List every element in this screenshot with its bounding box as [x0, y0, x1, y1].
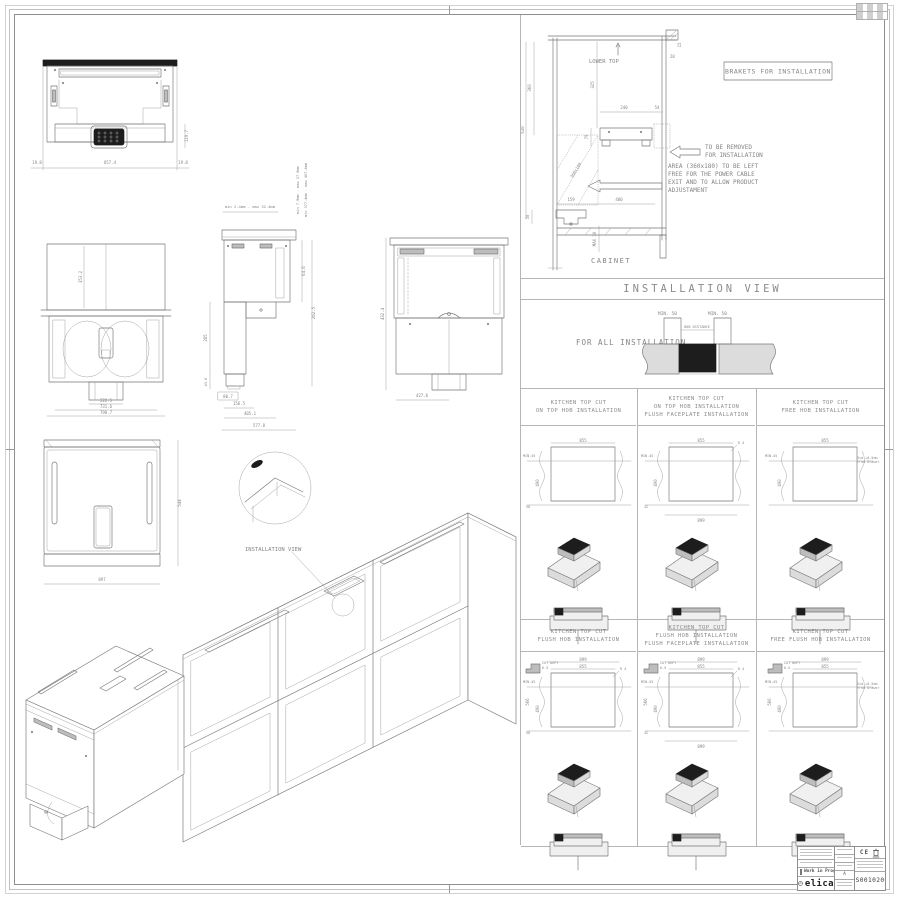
cut-panel-title: KITCHEN TOP CUT: [551, 400, 607, 406]
bottom-view: 353.2 222.5 731.6 798.7: [25, 232, 190, 417]
title-block: Work in Progress elica A CE: [797, 846, 886, 891]
dim-label: min 2.4mm - max 32.4mm: [225, 204, 276, 209]
cabinet-remove-note: TO BE REMOVED: [705, 144, 752, 151]
dim-label: 285: [203, 334, 208, 342]
dim-label: 156.5: [233, 401, 246, 406]
dim-label: 490: [535, 705, 540, 713]
dim-label: 20: [670, 54, 675, 59]
dim-label: 353.2: [78, 270, 83, 283]
dim-label: 80.7: [223, 394, 233, 399]
cut-panel-header: KITCHEN TOP CUT ON TOP HOB INSTALLATION …: [638, 389, 755, 426]
dim-label: 19.8: [178, 160, 188, 165]
dim-label: 159: [567, 197, 575, 202]
dim-label: MAX 30: [592, 231, 597, 246]
rear-view: 427.6 432.4: [380, 228, 520, 408]
dim-label: 899: [697, 518, 705, 523]
dim-label: 405.1: [244, 411, 257, 416]
installation-view-title: INSTALLATION VIEW: [623, 283, 781, 295]
dim-label: 855: [579, 664, 587, 669]
field-row: [835, 880, 854, 890]
kitchen-isometric: INSTALLATION VIEW: [172, 488, 522, 853]
detail-leader-label: INSTALLATION VIEW: [245, 547, 302, 553]
dim-label: 427.6: [416, 393, 429, 398]
dim-label: 490: [777, 479, 782, 487]
cabinet-lower-top-label: LOWER TOP: [589, 59, 619, 65]
drawing-code-row: DS0010200: [855, 872, 885, 888]
dim-label: 432.4: [380, 307, 385, 320]
dim-label: 566: [767, 698, 772, 706]
dim-label: 798.7: [100, 410, 113, 415]
dim-label: CUT DEPT: [784, 661, 800, 665]
revision-field: A: [835, 871, 854, 880]
dim-label: 899: [821, 657, 829, 662]
cut-panel-title: KITCHEN TOP CUT: [551, 629, 607, 635]
title-block-disclaimer2: [798, 860, 834, 868]
cut-panel-header: KITCHEN TOP CUT ON TOP HOB INSTALLATION: [521, 389, 636, 426]
dim-label: 855: [821, 438, 829, 443]
dim-label: MIN.45: [765, 680, 777, 684]
status-checkbox: [800, 869, 802, 875]
unit-isometric: [16, 632, 201, 847]
cut-panel-subtitle: FLUSH HOB INSTALLATION: [656, 633, 738, 639]
cabinet-label: CABINET: [591, 257, 631, 265]
cut-panel-subtitle: FREE FLUSH HOB INSTALLATION: [770, 637, 870, 643]
brand-row: elica: [798, 877, 834, 890]
field-row: [835, 855, 854, 863]
cut-panel-subtitle: FREE HOB INSTALLATION: [782, 408, 860, 414]
brakets-box-label: BRAKETS FOR INSTALLATION: [725, 68, 831, 76]
notes-row: [855, 859, 885, 872]
dim-label: 50: [525, 214, 530, 219]
cutout-diagram: CUT DEPT 6.5 899 855 MIN.45 490: [639, 656, 755, 750]
dim-label: 855: [697, 438, 705, 443]
dim-label: R 4: [738, 441, 744, 445]
cabinet-remove-note: FOR INSTALLATION: [705, 152, 763, 159]
dim-label: MIN.45: [641, 680, 653, 684]
status-row: Work in Progress: [798, 868, 834, 878]
dim-label: 360x180: [569, 161, 582, 178]
dim-label: min 7.9mm - max 37.9mm: [296, 166, 300, 214]
center-tick-top: [449, 6, 450, 15]
dim-label: CUT DEPT: [660, 661, 676, 665]
dim-label: 855: [697, 664, 705, 669]
cut-panel-subtitle: FLUSH HOB INSTALLATION: [538, 637, 620, 643]
cutout-diagram: 855 MIN.45 490: [763, 430, 879, 524]
cabinet-area-note: EXIT AND TO ALLOW PRODUCT: [668, 179, 759, 186]
cut-panel-note: Dim +0.5mm from Drawer: [857, 456, 883, 465]
cut-panel-header: KITCHEN TOP CUT FREE HOB INSTALLATION: [757, 389, 884, 426]
cutout-diagram: CUT DEPT 6.5 899 855 MIN.45 490: [763, 656, 879, 750]
dim-label: 857.4: [104, 160, 117, 165]
center-tick-right: [884, 449, 893, 450]
dim-label: 566: [525, 698, 530, 706]
dim-label: 54: [655, 105, 660, 110]
cabinet-area-note: ADJUSTAMENT: [668, 187, 708, 194]
dim-label: 64.6: [301, 266, 306, 276]
cut-panel-cell: KITCHEN TOP CUT FREE HOB INSTALLATION: [757, 389, 884, 618]
marks-row: CE: [855, 847, 885, 859]
cutout-diagram: 855 MIN.45 490 42 89: [639, 430, 755, 524]
dim-label: 43.6: [204, 378, 208, 387]
cutout-diagram: CUT DEPT 6.5 899 855 MIN.45 490: [521, 656, 637, 750]
dim-label: R 4: [620, 667, 626, 671]
brand-label: elica: [805, 879, 834, 889]
dim-label: 490: [653, 705, 658, 713]
dim-label: 566: [643, 698, 648, 706]
dim-label: 400: [615, 197, 623, 202]
dim-label: 262.5: [311, 306, 316, 319]
dim-label: 577.8: [253, 423, 266, 428]
dim-label: 6.5: [542, 666, 548, 670]
cutout-diagram: 855 MIN.45 490 50: [521, 430, 637, 524]
corner-isometric: [786, 534, 856, 592]
installation-view-band: INSTALLATION VIEW: [521, 278, 884, 300]
dim-label: R 4: [738, 667, 744, 671]
dim-label: 240: [620, 105, 628, 110]
dim-label: 325: [590, 81, 595, 89]
title-block-disclaimer: [798, 847, 834, 860]
dim-label: 490: [777, 705, 782, 713]
cut-panel-grid: KITCHEN TOP CUT ON TOP HOB INSTALLATION: [521, 388, 884, 847]
cut-panel-subtitle: ON TOP HOB INSTALLATION: [654, 404, 739, 410]
cut-panel-title: KITCHEN TOP CUT: [793, 629, 849, 635]
dim-label: MIN.45: [523, 454, 535, 458]
dim-label: MIN. 50: [708, 311, 727, 317]
status-label: Work in Progress: [804, 869, 834, 874]
cut-panel-header: KITCHEN TOP CUT FREE FLUSH HOB INSTALLAT…: [757, 620, 884, 652]
weee-bin-icon: [872, 848, 880, 858]
center-tick-left: [6, 449, 15, 450]
dim-label: min 377.4mm - max 407.4mm: [304, 163, 308, 217]
cut-panel-subtitle2: FLUSH FACEPLATE INSTALLATION: [645, 641, 749, 647]
drawing-code: DS0010200: [855, 877, 885, 884]
corner-isometric: [544, 534, 614, 592]
dim-label: 360: [527, 84, 532, 92]
dim-label: MIN.45: [523, 680, 535, 684]
cut-panel-note: Dim +0.5mm from Drawer: [857, 682, 883, 691]
dim-label: 50: [526, 505, 530, 509]
dim-label: 490: [653, 479, 658, 487]
cut-panel-title: KITCHEN TOP CUT: [669, 396, 725, 402]
dim-label: 638: [521, 126, 525, 134]
cut-panel-header: KITCHEN TOP CUT FLUSH HOB INSTALLATION F…: [638, 620, 755, 652]
cut-panel-cell: KITCHEN TOP CUT ON TOP HOB INSTALLATION: [521, 389, 636, 618]
side-view: min 7.9mm - max 37.9mm min 377.4mm - max…: [198, 142, 338, 437]
cut-panel-subtitle: ON TOP HOB INSTALLATION: [536, 408, 621, 414]
dim-label: 855: [579, 438, 587, 443]
dim-label: 42: [644, 731, 648, 735]
dim-label: 222.5: [100, 398, 113, 403]
elica-logo-icon: [798, 879, 803, 888]
cut-panel-header: KITCHEN TOP CUT FLUSH HOB INSTALLATION: [521, 620, 636, 652]
for-all-installation-panel: FOR ALL INSTALLATION MIN. 50 MIN. 50 HOB…: [521, 298, 884, 388]
ce-mark: CE: [860, 849, 869, 856]
center-tick-bottom: [449, 884, 450, 893]
corner-isometric: [544, 760, 614, 818]
dim-label: 855: [821, 664, 829, 669]
corner-isometric: [662, 534, 732, 592]
dim-label: MIN. 50: [658, 311, 677, 317]
dim-label: 19.8: [32, 160, 42, 165]
cabinet-area-note: FREE FOR THE POWER CABLE: [668, 171, 755, 178]
dim-label: HOB DISTANCE: [684, 325, 710, 329]
dim-label: 899: [579, 657, 587, 662]
dim-label: 731.6: [100, 404, 113, 409]
dim-label: 897: [98, 577, 106, 582]
dim-label: 899: [697, 744, 705, 749]
edge-profile: [662, 826, 732, 872]
dim-label: 50: [526, 731, 530, 735]
dim-label: MIN.45: [765, 454, 777, 458]
cut-panel-title: KITCHEN TOP CUT: [793, 400, 849, 406]
revision-value: A: [843, 872, 846, 877]
cut-panel-cell: KITCHEN TOP CUT FLUSH HOB INSTALLATION F…: [638, 620, 755, 846]
dim-label: MIN.45: [641, 454, 653, 458]
front-view: 19.8 857.4 19.8 119.7: [25, 50, 195, 210]
dim-label: 490: [535, 479, 540, 487]
cut-panel-cell: KITCHEN TOP CUT FLUSH HOB INSTALLATION C…: [521, 620, 636, 846]
cabinet-section: LOWER TOP 15 20 240 54 325 79 360 638 TO…: [521, 15, 884, 277]
cut-panel-cell: KITCHEN TOP CUT FREE FLUSH HOB INSTALLAT…: [757, 620, 884, 846]
dim-label: CUT DEPT: [542, 661, 558, 665]
corner-isometric: [786, 760, 856, 818]
dim-label: 42: [644, 505, 648, 509]
field-row: [835, 863, 854, 871]
drawing-sheet: 19.8 857.4 19.8 119.7 353.2 222.5 731.6 …: [0, 0, 899, 899]
cut-panel-title: KITCHEN TOP CUT: [669, 625, 725, 631]
dim-label: 899: [697, 657, 705, 662]
field-row: [835, 847, 854, 855]
dim-label: 6.5: [784, 666, 790, 670]
cabinet-area-note: AREA (360x180) TO BE LEFT: [668, 163, 759, 170]
cut-panel-cell: KITCHEN TOP CUT ON TOP HOB INSTALLATION …: [638, 389, 755, 618]
edge-profile: [544, 826, 614, 872]
dim-label: 15: [677, 42, 682, 47]
cut-panel-subtitle2: FLUSH FACEPLATE INSTALLATION: [645, 412, 749, 418]
dim-label: 6.5: [660, 666, 666, 670]
dim-label: 119.7: [184, 129, 189, 142]
corner-isometric: [662, 760, 732, 818]
